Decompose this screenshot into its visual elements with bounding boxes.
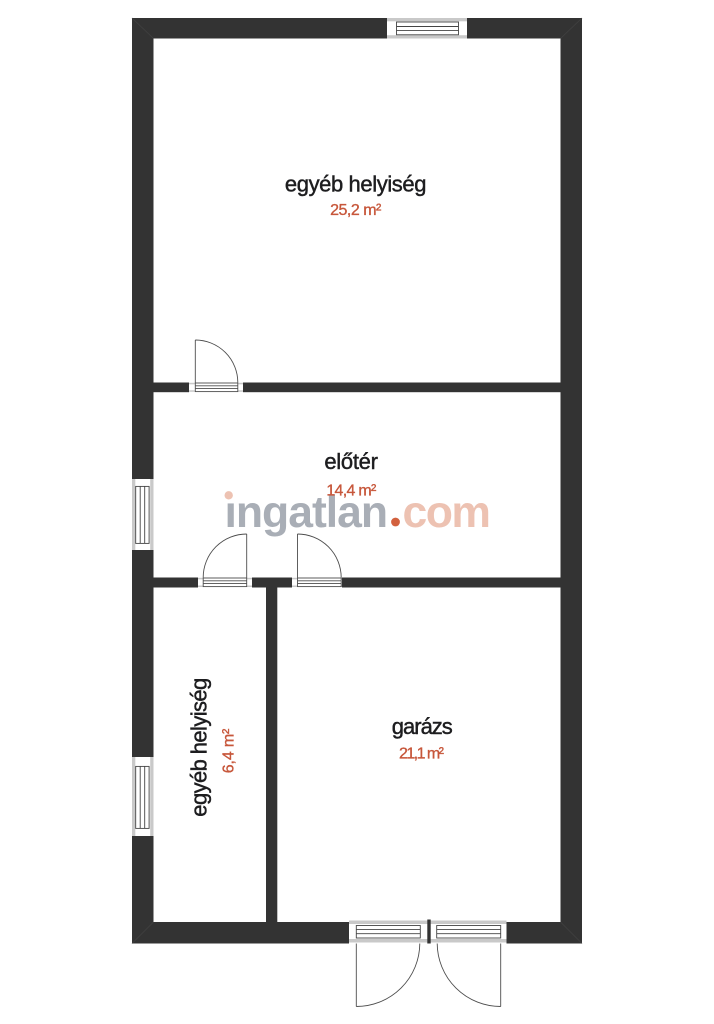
svg-text:com: com (403, 488, 490, 537)
svg-text:egyéb helyiség: egyéb helyiség (187, 678, 212, 816)
svg-text:14,4 m²: 14,4 m² (326, 483, 377, 500)
svg-text:előtér: előtér (324, 449, 377, 474)
svg-text:garázs: garázs (392, 714, 453, 739)
svg-text:egyéb helyiség: egyéb helyiség (285, 172, 426, 197)
svg-text:21,1 m²: 21,1 m² (399, 746, 445, 763)
svg-text:6,4 m²: 6,4 m² (221, 728, 238, 773)
svg-text:25,2 m²: 25,2 m² (330, 202, 382, 219)
